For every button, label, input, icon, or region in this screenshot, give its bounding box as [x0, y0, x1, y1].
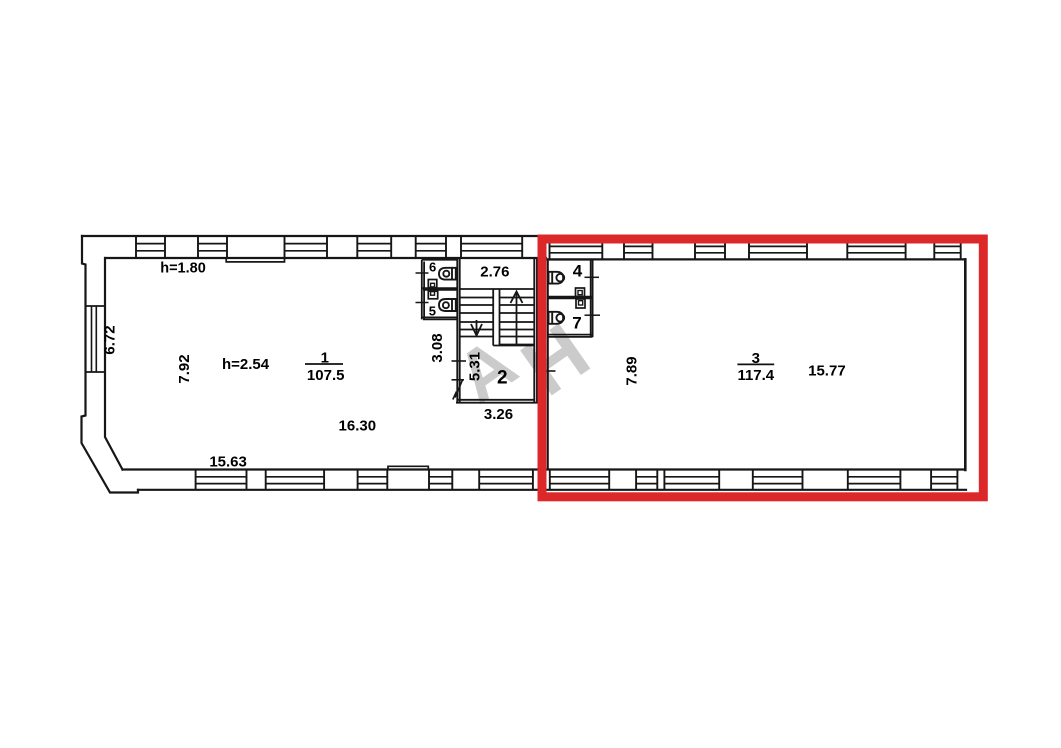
svg-text:107.5: 107.5 — [307, 367, 345, 384]
svg-text:15.77: 15.77 — [808, 363, 846, 380]
svg-text:h=2.54: h=2.54 — [222, 356, 270, 373]
svg-text:5: 5 — [429, 303, 436, 318]
svg-text:6: 6 — [429, 259, 436, 274]
svg-text:2.76: 2.76 — [480, 264, 509, 281]
svg-text:7.92: 7.92 — [176, 354, 193, 383]
svg-text:6.72: 6.72 — [102, 325, 119, 354]
svg-text:16.30: 16.30 — [339, 417, 377, 434]
svg-text:h=1.80: h=1.80 — [160, 261, 206, 277]
svg-text:2: 2 — [497, 368, 508, 389]
svg-text:117.4: 117.4 — [737, 367, 774, 384]
svg-text:3.26: 3.26 — [484, 406, 513, 423]
svg-text:15.63: 15.63 — [209, 453, 247, 470]
svg-text:4: 4 — [573, 262, 583, 281]
svg-text:3.08: 3.08 — [429, 333, 446, 362]
svg-text:5.31: 5.31 — [467, 352, 484, 381]
svg-text:7: 7 — [572, 314, 581, 333]
svg-text:7.89: 7.89 — [624, 356, 641, 385]
